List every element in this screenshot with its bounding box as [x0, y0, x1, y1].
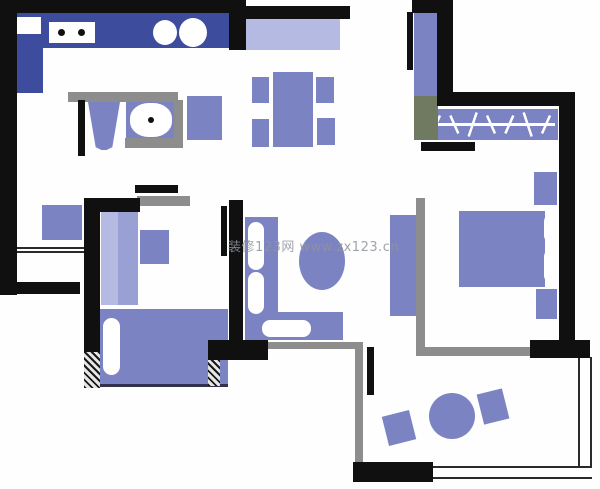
wall-top-left — [0, 0, 232, 13]
bedroom2-wardrobe-dark — [118, 211, 138, 305]
balcony-chair-left — [382, 410, 416, 446]
wall-right — [559, 97, 575, 343]
hatch-bedroom2-window — [84, 352, 100, 388]
dining-chair-top-right — [316, 77, 334, 103]
wall-closet-left — [437, 0, 453, 104]
wall-left — [0, 0, 17, 295]
master-pillow-bottom — [544, 249, 559, 283]
toilet — [88, 102, 120, 150]
master-pillow-top — [544, 214, 559, 243]
sink-basin-right — [179, 18, 207, 47]
balcony-chair-right — [477, 388, 510, 424]
balcony-wall-horizontal — [262, 342, 360, 349]
closet-corner — [414, 96, 438, 140]
sink-basin-left — [153, 20, 177, 45]
bedroom2-doorframe — [137, 196, 190, 206]
balcony-wall-vertical — [355, 342, 363, 464]
dining-chair-bottom-left — [252, 119, 269, 147]
wall-center — [229, 200, 243, 345]
door-bathroom-leaf — [78, 100, 85, 156]
closet-unit-vertical — [414, 13, 437, 97]
door-entry-leaf — [407, 12, 413, 70]
wall-top-mid — [245, 6, 350, 19]
bedroom2-desk — [140, 230, 169, 264]
master-nightstand-bottom — [536, 289, 557, 319]
balcony-edge-right — [578, 357, 592, 479]
dining-chair-bottom-right — [317, 118, 335, 145]
storage-window — [8, 247, 84, 253]
wall-storage-bottom — [0, 282, 80, 294]
wall-master-bottom — [530, 340, 590, 358]
wall-balcony-bottom — [353, 462, 433, 482]
master-wall-vertical — [416, 198, 425, 347]
wall-entry-stub — [229, 0, 246, 50]
hatch-living-window — [208, 360, 220, 386]
bedroom2-pillow — [103, 318, 120, 375]
stove-burner-right — [78, 29, 85, 36]
balcony-edge-bottom — [430, 466, 592, 479]
balcony-table — [429, 393, 475, 439]
wall-living-bottom — [208, 340, 268, 360]
washbasin-drain — [148, 117, 154, 123]
entry-cabinet — [245, 19, 340, 50]
kitchen-appliance — [13, 17, 41, 34]
closet-door-bar — [421, 142, 475, 151]
dining-chair-top-left — [252, 77, 269, 103]
watermark: 装修123网 www.zx123.cn — [228, 236, 399, 255]
washing-machine — [187, 96, 222, 140]
door-bedroom2-inner-leaf — [221, 206, 227, 256]
hanger-rail-icon — [424, 109, 558, 140]
floorplan-canvas: 装修123网 www.zx123.cn — [0, 0, 600, 489]
hall-cabinet — [42, 205, 82, 240]
sofa-cushion-middle — [248, 272, 264, 314]
door-bedroom2-leaf — [135, 185, 178, 193]
wall-bedroom2-top — [84, 198, 140, 212]
wall-closet-bottom — [437, 92, 575, 106]
bathroom-frame-bottom — [125, 138, 183, 148]
wardrobe-rail — [424, 109, 558, 140]
sofa-cushion-bottom — [262, 320, 311, 337]
door-balcony-leaf — [367, 347, 374, 395]
bedroom2-wardrobe-light — [101, 211, 118, 305]
wall-bedroom2-left — [84, 198, 100, 356]
master-nightstand-top — [534, 172, 557, 205]
master-wall-horizontal — [416, 347, 530, 356]
tv-cabinet — [390, 215, 417, 316]
dining-table — [273, 72, 313, 147]
master-bed — [459, 211, 545, 287]
stove-burner-left — [58, 29, 65, 36]
kitchen-stove — [49, 22, 95, 43]
